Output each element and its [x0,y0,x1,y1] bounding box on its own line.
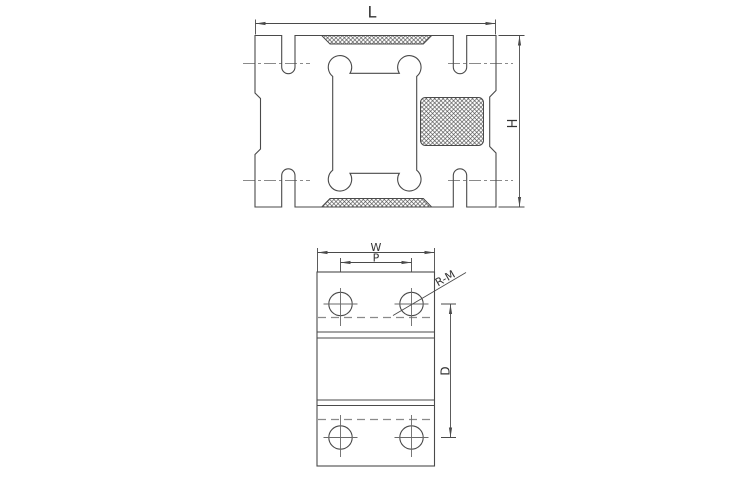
thread-callout: R-M [393,268,466,316]
dimension-D-label: D [439,366,453,375]
dimension-H-label: H [506,119,521,129]
hatch-pad-right [421,98,484,146]
dimension-P-label: P [373,252,380,265]
top-view-center-cutout [328,56,421,192]
engineering-drawing: L H W P [0,0,750,489]
hatch-pad-top [322,36,432,45]
dimension-L-extension-lines [256,20,496,35]
dimension-L: L [256,3,496,35]
hatch-pad-bottom [322,199,432,208]
dimension-D: D [439,304,457,438]
front-view: W P D R-M [317,241,466,466]
dimension-P: P [341,252,412,273]
front-view-hidden-lines [318,318,434,420]
front-view-hole-centerlines [324,288,429,457]
thread-callout-label: R-M [433,268,457,290]
drawing-page: L H W P [0,0,750,489]
top-view: L H [243,3,525,208]
front-view-plate-edge-lines [317,332,435,406]
top-view-hatch-pads [322,36,484,208]
dimension-L-label: L [368,3,377,22]
dimension-H: H [499,36,525,208]
front-view-holes [329,292,423,449]
